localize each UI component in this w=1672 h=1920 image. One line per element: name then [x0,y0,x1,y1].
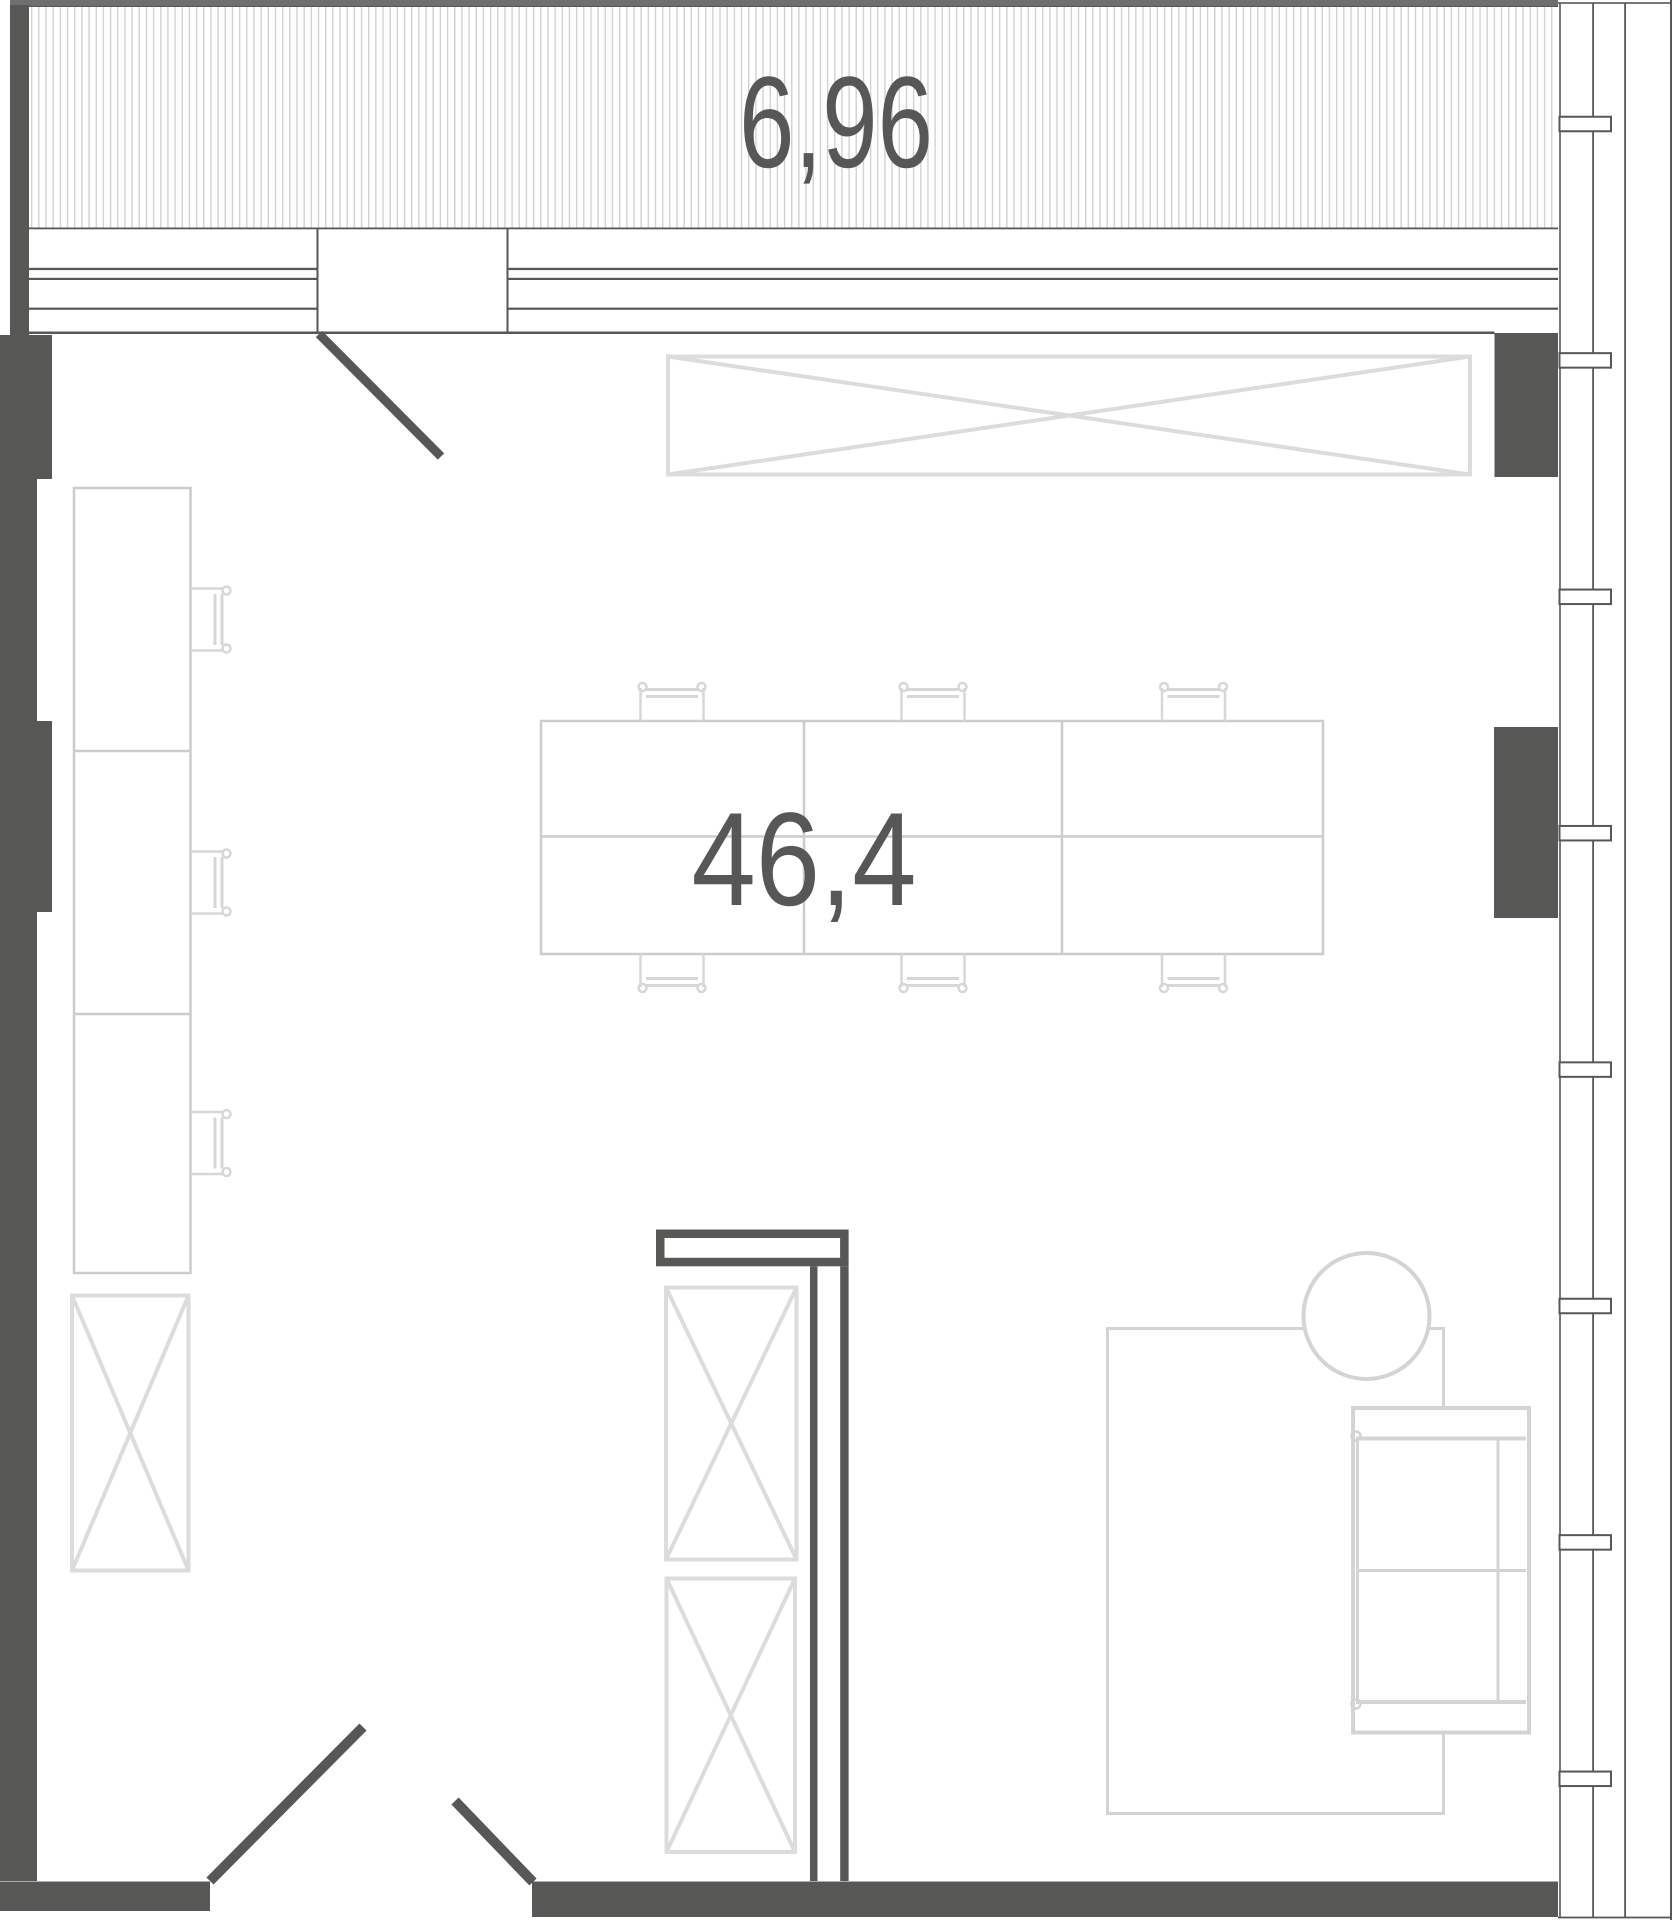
svg-text:6,96: 6,96 [739,49,933,195]
svg-text:46,4: 46,4 [692,786,917,934]
